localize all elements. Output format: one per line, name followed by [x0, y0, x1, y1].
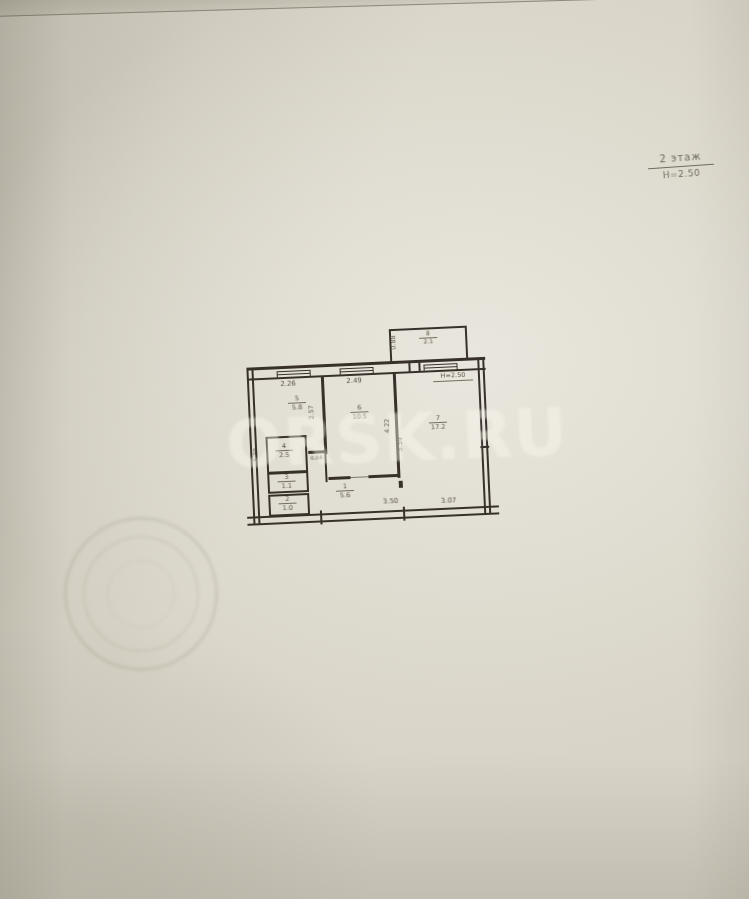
- room-area: 17.2: [429, 423, 447, 431]
- room-area: 2.5: [275, 451, 293, 459]
- balcony-label: 8 2.1: [419, 330, 438, 345]
- room-area: 2.1: [419, 338, 437, 345]
- room5-label: 5 5.8: [288, 395, 307, 411]
- photographed-floor-plan-page: 2 этаж Н=2.50 0.88 8 2.1: [0, 0, 749, 899]
- room7-depth-dim: 5.59: [396, 432, 404, 456]
- stamp-watermark: [64, 517, 218, 671]
- height-note: Н=2.50: [433, 371, 473, 382]
- room1-label: 1 5.6: [336, 483, 355, 499]
- room4-label: 4 2.5: [275, 443, 294, 459]
- stamp-center-ring: [107, 560, 175, 628]
- balcony-depth-dim: 0.88: [389, 330, 397, 354]
- room3-label: 3 1.1: [277, 474, 296, 490]
- paper-crease: [0, 0, 749, 17]
- wall-room5-room6: [321, 377, 327, 454]
- dim-top-mid: 2.49: [337, 377, 371, 386]
- dim-bottom-right: 3.07: [434, 497, 462, 505]
- wall-room6-bottom: [328, 476, 350, 480]
- dim-top-left: 2.26: [273, 380, 303, 388]
- room-area: 5.8: [288, 403, 306, 411]
- room2-label: 2 1.0: [278, 496, 297, 512]
- window-symbol: [277, 370, 311, 378]
- room-area: 5.6: [336, 491, 354, 499]
- room5-depth-dim: 2.57: [307, 400, 315, 424]
- floor-plan-drawing: 0.88 8 2.1 2.26 2.49 Н=2.50: [243, 316, 504, 529]
- room-area: 1.1: [278, 482, 296, 490]
- room6-depth-dim: 4.22: [383, 414, 391, 438]
- wall-right: [477, 357, 491, 513]
- room4-width-dim: 1.38: [252, 443, 260, 467]
- room7-label: 7 17.2: [429, 415, 448, 431]
- window-symbol: [339, 367, 373, 375]
- window-symbol: [423, 363, 457, 371]
- wall-room6-room7: [393, 374, 401, 478]
- door-mark: [399, 481, 403, 488]
- room-area: 10.5: [351, 412, 369, 420]
- dim-bottom-mid: 3.50: [376, 498, 404, 506]
- door-symbol: [349, 476, 369, 478]
- corner-note: 2 этаж Н=2.50: [647, 150, 715, 182]
- room6-label: 6 10.5: [350, 404, 369, 420]
- stub-width-dim: 0.84: [306, 454, 326, 462]
- ceiling-height-label: Н=2.50: [648, 167, 715, 182]
- room-area: 1.0: [279, 504, 297, 512]
- wall-room6-bottom: [368, 474, 399, 478]
